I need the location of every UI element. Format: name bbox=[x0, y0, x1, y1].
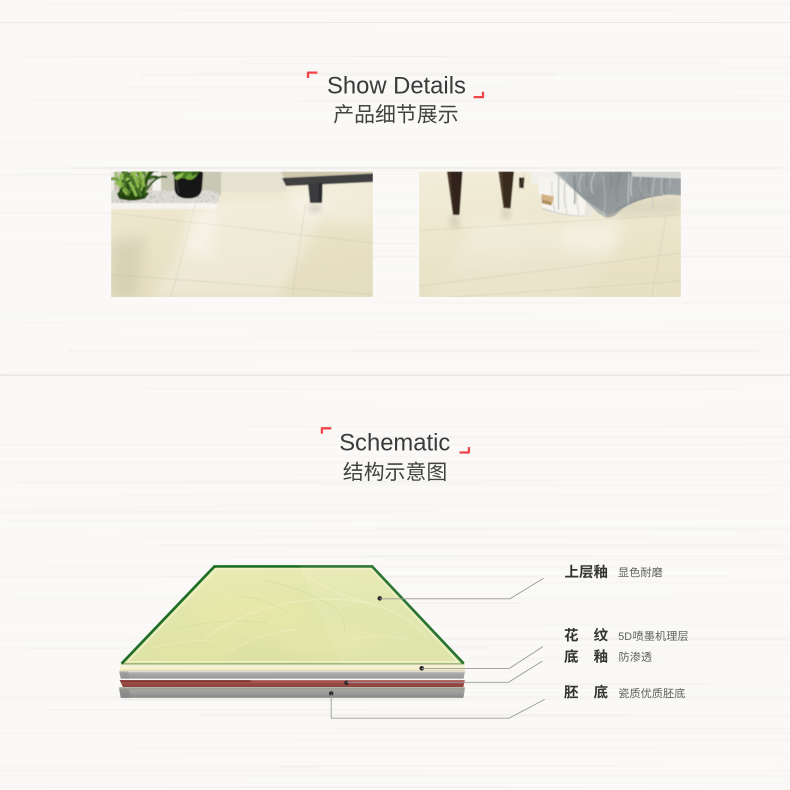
svg-text:Schematic: Schematic bbox=[339, 429, 450, 456]
svg-text:5D: 5D bbox=[618, 631, 632, 643]
svg-text:Show Details: Show Details bbox=[327, 72, 466, 99]
